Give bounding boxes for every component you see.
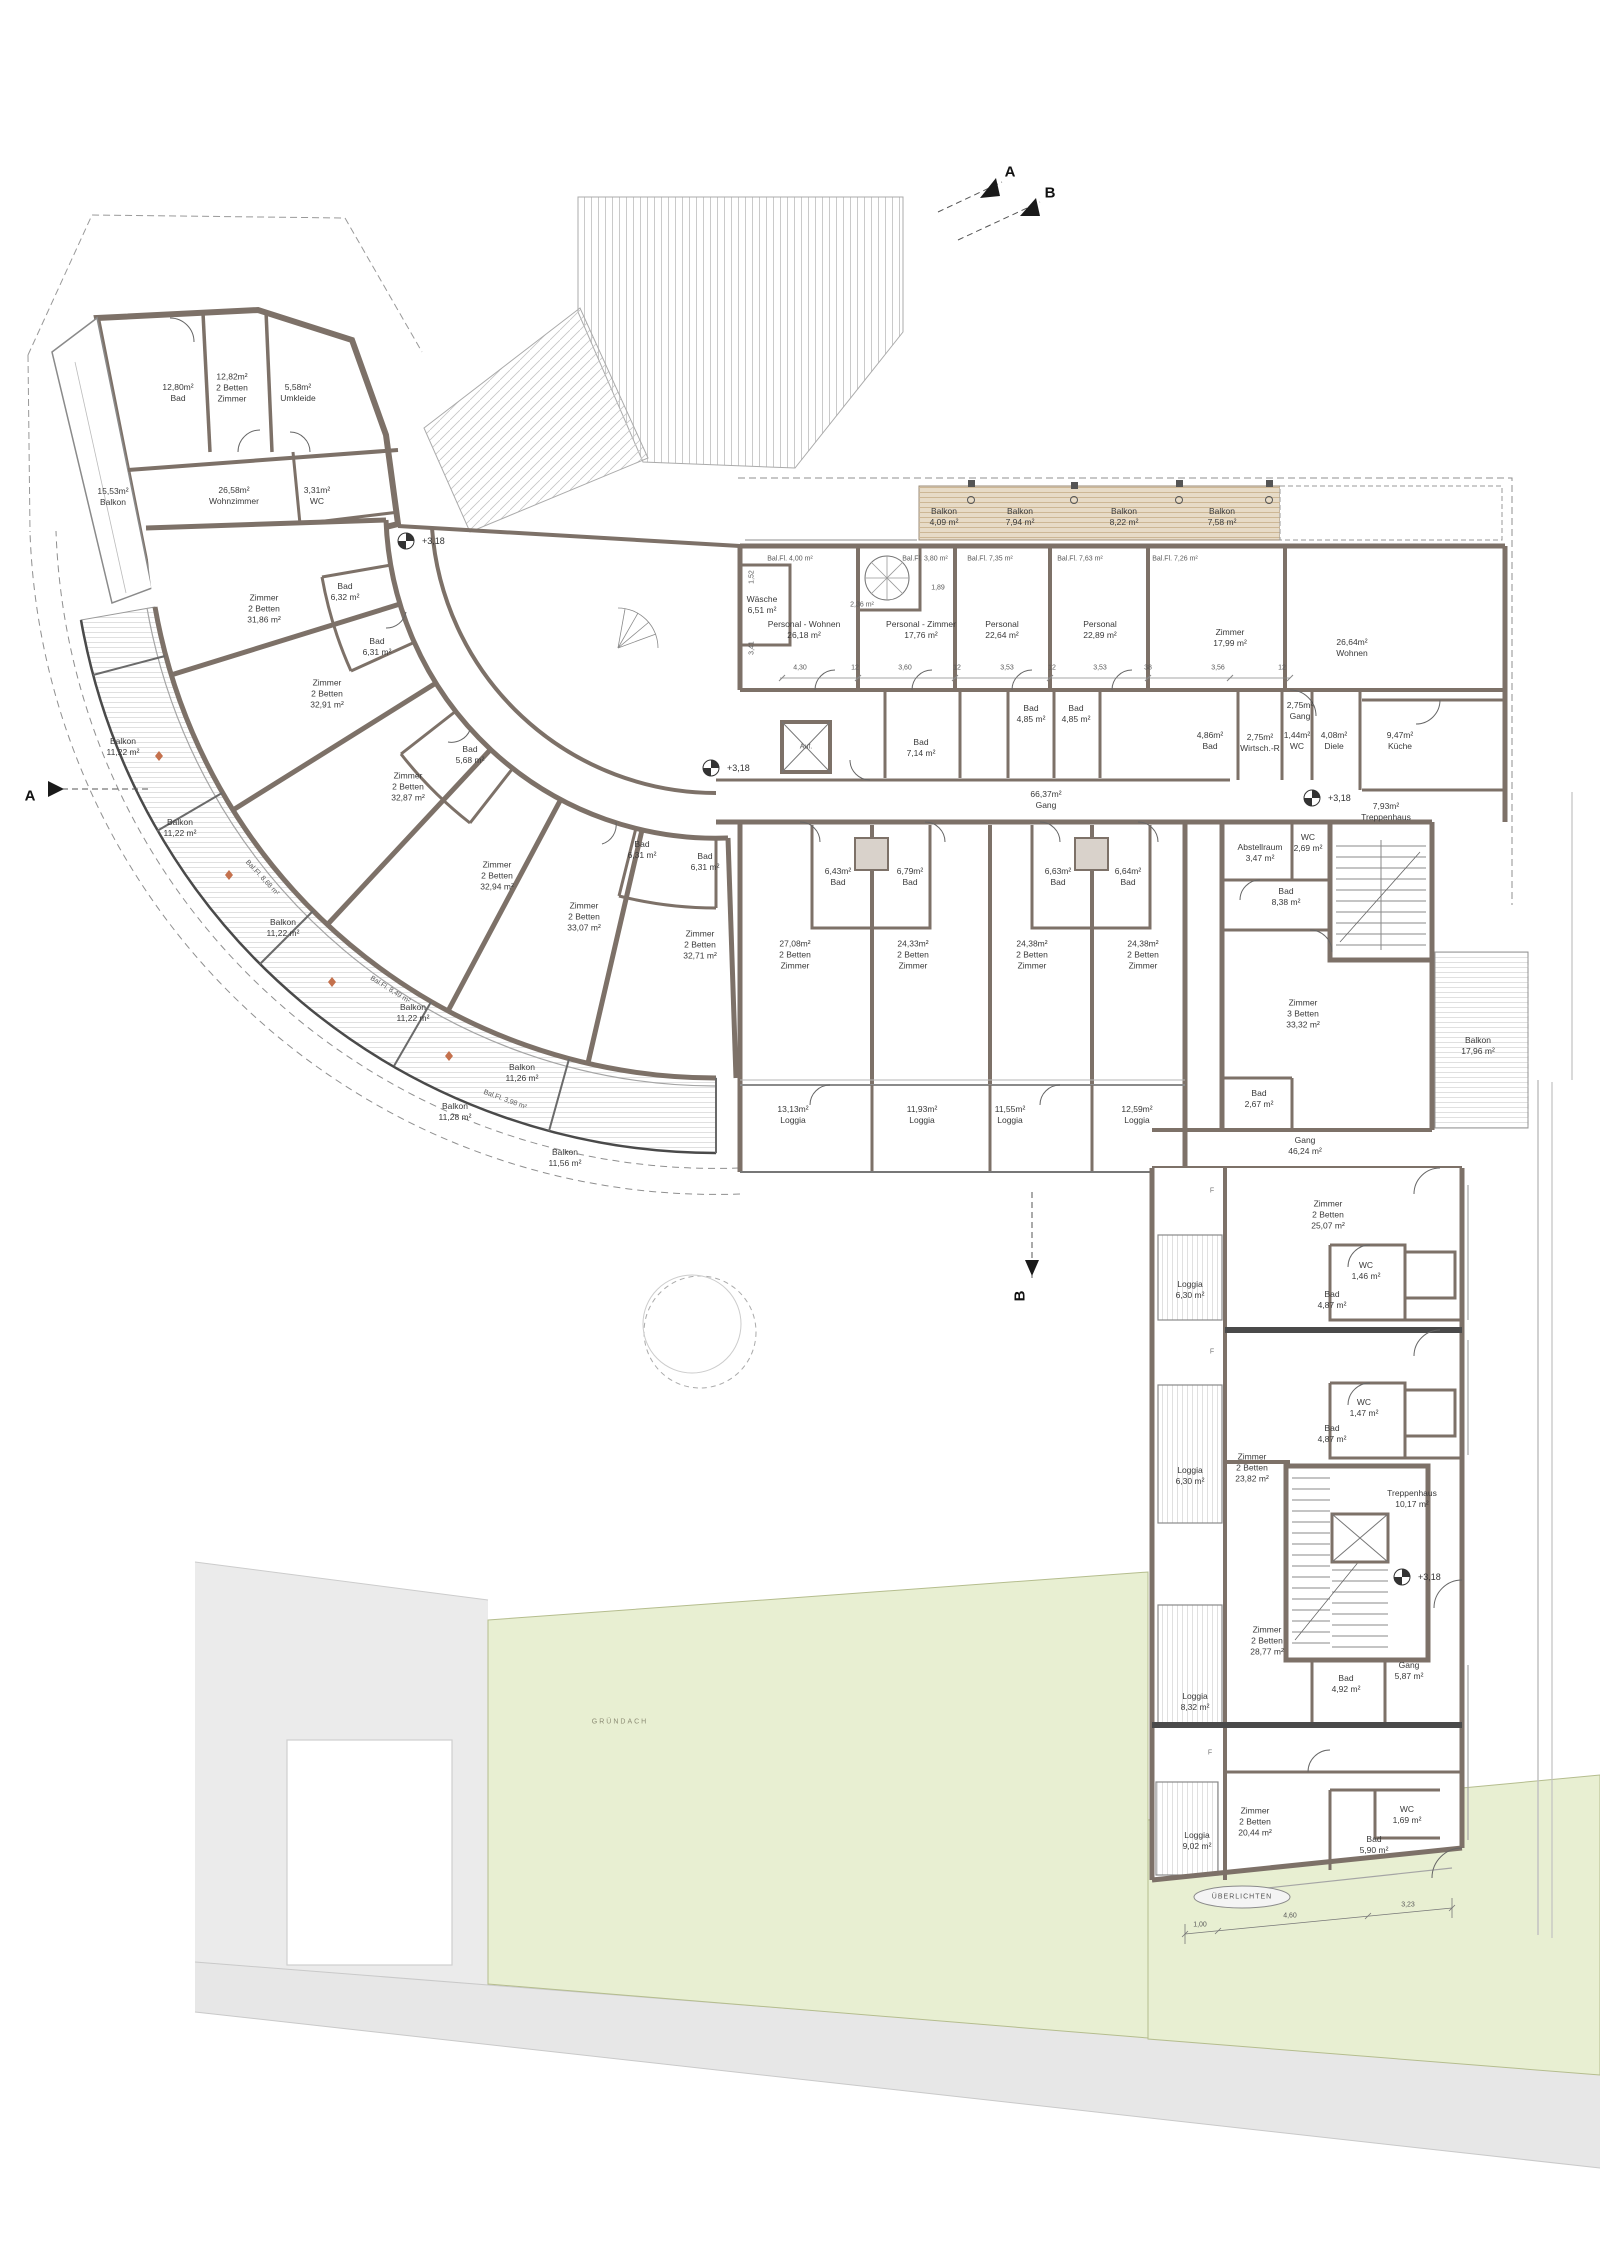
- tree-circle: [643, 1275, 756, 1388]
- skylight-label: ÜBERLICHTEN: [1212, 1894, 1272, 1901]
- elevator: [782, 722, 830, 772]
- south-rooms-block: [740, 822, 1185, 1172]
- section-marker-a-left: A: [25, 788, 36, 805]
- elevator-sw: [1332, 1514, 1388, 1562]
- section-marker-a-top: A: [1005, 164, 1016, 181]
- east-block: [1152, 822, 1528, 1168]
- floor-plan-drawing: [0, 0, 1600, 2264]
- stair-treads-east: [1336, 840, 1426, 950]
- green-roof-label: GRÜNDACH: [592, 1719, 648, 1726]
- section-marker-b-top: B: [1045, 185, 1056, 202]
- terrace-hatched: [424, 197, 903, 532]
- spiral-stair: [865, 556, 909, 600]
- floor-plan-canvas: 12,80m² Bad 12,82m² 2 Betten Zimmer 5,58…: [0, 0, 1600, 2264]
- building-footprint: [287, 1740, 452, 1965]
- fan-stair: [618, 608, 658, 648]
- green-roof-area: [488, 1572, 1148, 2038]
- section-marker-b-mid: B: [1012, 1291, 1029, 1302]
- east-balcony: [1435, 952, 1528, 1128]
- south-wing: [1152, 1168, 1468, 1944]
